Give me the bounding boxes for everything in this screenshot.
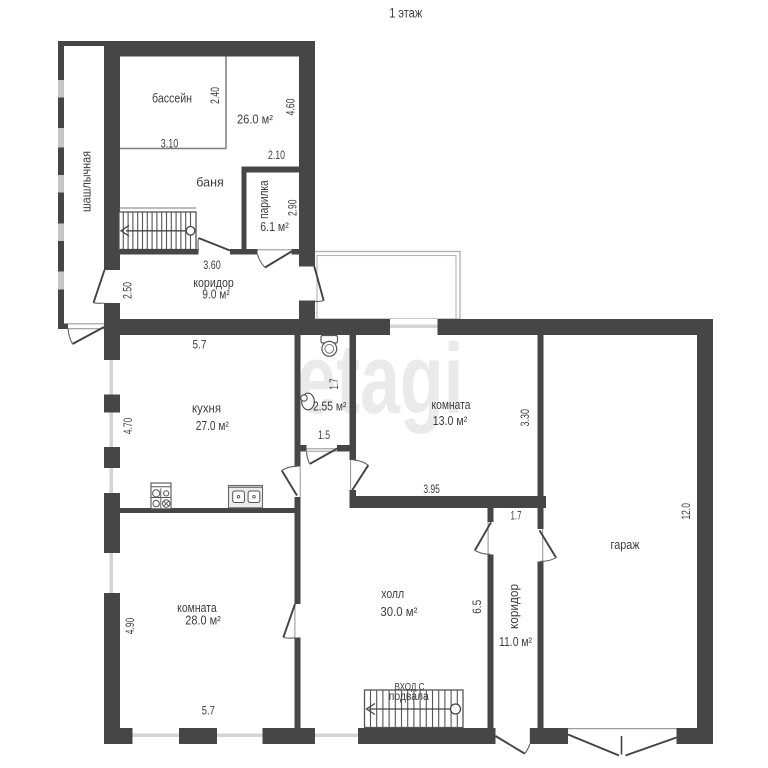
svg-text:27.0 м²: 27.0 м²: [196, 418, 230, 433]
svg-text:2.55 м²: 2.55 м²: [313, 398, 347, 413]
svg-text:3.30: 3.30: [520, 409, 532, 427]
svg-text:1.7: 1.7: [511, 511, 522, 523]
svg-text:4.60: 4.60: [285, 99, 297, 116]
svg-text:холл: холл: [381, 586, 404, 601]
svg-text:парилка: парилка: [256, 180, 271, 219]
svg-text:9.0 м²: 9.0 м²: [202, 287, 230, 302]
svg-text:баня: баня: [196, 174, 224, 189]
svg-text:коридор: коридор: [506, 584, 521, 629]
svg-text:4.90: 4.90: [125, 618, 137, 635]
svg-text:12.0: 12.0: [681, 503, 693, 520]
svg-text:2.50: 2.50: [123, 282, 135, 299]
svg-text:5.7: 5.7: [202, 706, 215, 718]
svg-text:3.95: 3.95: [423, 484, 440, 496]
svg-text:кухня: кухня: [192, 401, 221, 416]
svg-text:4.70: 4.70: [123, 418, 135, 435]
svg-text:1 этаж: 1 этаж: [389, 6, 422, 21]
svg-text:6.1 м²: 6.1 м²: [260, 219, 289, 234]
svg-text:подвала: подвала: [389, 691, 430, 703]
svg-text:11.0 м²: 11.0 м²: [499, 634, 533, 649]
svg-text:бассейн: бассейн: [152, 91, 192, 106]
svg-text:13.0 м²: 13.0 м²: [433, 413, 468, 428]
svg-text:3.60: 3.60: [203, 260, 221, 272]
svg-text:2.10: 2.10: [268, 150, 285, 162]
svg-text:3.10: 3.10: [161, 139, 179, 151]
svg-text:6.5: 6.5: [472, 600, 484, 614]
svg-text:шашлычная: шашлычная: [79, 151, 94, 212]
svg-text:28.0 м²: 28.0 м²: [185, 613, 221, 628]
svg-text:гараж: гараж: [611, 537, 640, 552]
svg-text:комната: комната: [432, 397, 472, 412]
svg-text:26.0 м²: 26.0 м²: [237, 112, 274, 127]
svg-text:2.40: 2.40: [210, 87, 222, 104]
svg-text:5.7: 5.7: [193, 339, 207, 351]
svg-text:1.5: 1.5: [318, 430, 330, 442]
svg-text:30.0 м²: 30.0 м²: [380, 604, 418, 619]
svg-text:2.90: 2.90: [288, 200, 300, 217]
svg-text:1.7: 1.7: [329, 379, 341, 390]
